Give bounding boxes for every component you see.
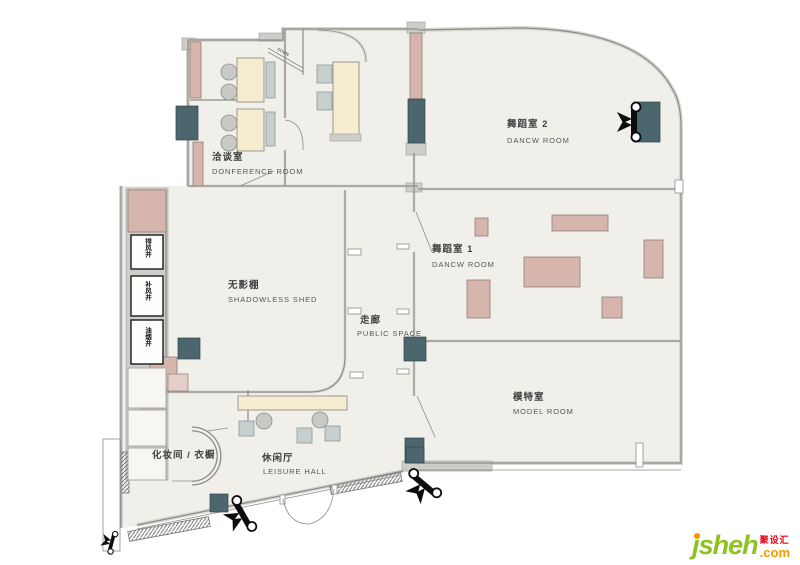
logo-tld-text: .com xyxy=(760,546,790,559)
model-room-door-panel xyxy=(636,443,643,467)
column-corridor-mid xyxy=(404,337,426,361)
square-chair xyxy=(325,426,340,441)
round-chair xyxy=(256,413,272,429)
bench xyxy=(266,62,275,98)
chair xyxy=(221,115,237,131)
column-entrance xyxy=(406,447,424,463)
label-dance1-en: DANCW ROOM xyxy=(432,260,495,269)
equipment-block-conference xyxy=(176,106,198,140)
chair xyxy=(317,92,332,110)
label-corridor-zh: 走廊 xyxy=(359,314,381,326)
chair xyxy=(317,65,332,83)
floor-plan-drawing: DOWN 排风井 补风井 油烟井 xyxy=(0,0,800,565)
floor-plan-page: { "rooms": { "conference": {"zh": "洽谈室",… xyxy=(0,0,800,565)
label-leisure-en: LEISURE HALL xyxy=(263,467,327,476)
label-model-zh: 模特室 xyxy=(513,391,545,403)
chair xyxy=(221,84,237,100)
logo-brand-text: jsheh xyxy=(692,532,758,559)
label-conference-en: DONFERENCE ROOM xyxy=(212,167,303,176)
spotlight-icon xyxy=(398,467,443,510)
logo-chinese-text: 聚设汇 xyxy=(760,536,790,545)
desk-conference-2 xyxy=(237,109,264,151)
desk-conference-1 xyxy=(237,58,264,102)
label-dance2-en: DANCW ROOM xyxy=(507,136,570,145)
column-makeup xyxy=(210,494,228,512)
label-makeup-zh: 化妆间 / 衣橱 xyxy=(152,449,215,461)
label-leisure-zh: 休闲厅 xyxy=(261,452,294,464)
site-logo: jsheh 聚设汇 .com xyxy=(692,532,790,559)
label-dance2-zh: 舞蹈室 2 xyxy=(507,118,548,130)
square-chair xyxy=(239,421,254,436)
reception-desk xyxy=(333,62,359,136)
leisure-table xyxy=(238,396,347,410)
label-dance1-zh: 舞蹈室 1 xyxy=(432,243,473,255)
square-chair xyxy=(297,428,312,443)
label-shadowless-zh: 无影棚 xyxy=(227,279,260,291)
column-shed-corner xyxy=(178,338,200,359)
equipment-block-divider xyxy=(408,99,425,143)
label-shadowless-en: SHADOWLESS SHED xyxy=(228,295,317,304)
bench xyxy=(266,112,275,146)
label-corridor-en: PUBLIC SPACE xyxy=(357,329,422,338)
chair xyxy=(221,64,237,80)
label-conference-zh: 洽谈室 xyxy=(212,151,244,163)
label-model-en: MODEL ROOM xyxy=(513,407,574,416)
chair xyxy=(221,135,237,151)
